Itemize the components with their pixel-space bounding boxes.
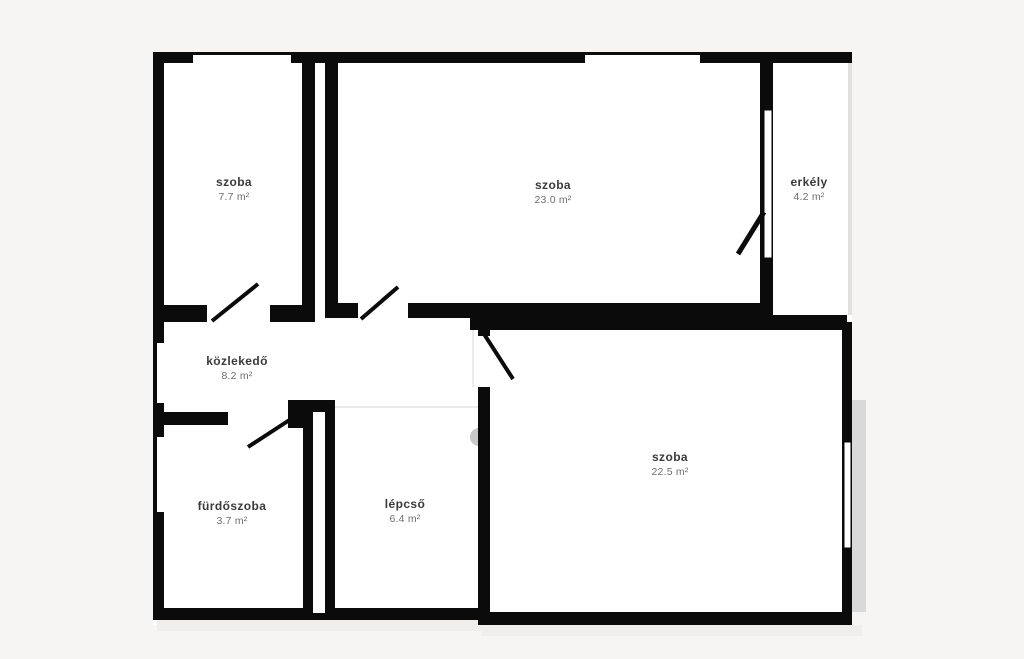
window-room1-top [193, 55, 291, 64]
window-room7-right [844, 442, 851, 548]
wall-junction-cap [288, 400, 335, 412]
wall-bath-right [303, 412, 313, 620]
room-name: lépcső [385, 498, 425, 512]
room-name: szoba [652, 451, 689, 465]
room-name: fürdőszoba [198, 500, 267, 514]
room-label-erkely: erkély 4.2 m² [790, 176, 827, 203]
plan-interior [153, 52, 852, 625]
room-area: 23.0 m² [535, 194, 572, 206]
channel-notch [313, 608, 325, 613]
shadow-bottom-right [482, 625, 862, 636]
room-name: szoba [535, 179, 572, 193]
room-label-szoba-2: szoba 23.0 m² [535, 179, 572, 206]
room-label-kozlekedo: közlekedő 8.2 m² [206, 355, 268, 382]
wall-room2-left [325, 52, 338, 318]
room-name: erkély [790, 176, 827, 190]
wall-room1-bottom-a [153, 305, 207, 322]
room-area: 7.7 m² [216, 191, 252, 203]
room-area: 22.5 m² [652, 466, 689, 478]
balcony-door-leaf [764, 110, 772, 258]
wall-room2-bottom-b [408, 303, 773, 318]
wall-stairs-left [325, 412, 335, 620]
room-label-lepcso: lépcső 6.4 m² [385, 498, 425, 525]
room-area: 8.2 m² [206, 370, 268, 382]
window-room2-top [585, 55, 700, 64]
shadow-bottom-left [157, 620, 490, 631]
window-bath-left [157, 437, 165, 512]
wall-bath-top [164, 412, 228, 425]
floor-plan: szoba 7.7 m² szoba 23.0 m² erkély 4.2 m²… [0, 0, 1024, 659]
room-area: 4.2 m² [790, 191, 827, 203]
room-area: 6.4 m² [385, 513, 425, 525]
room-label-szoba-1: szoba 7.7 m² [216, 176, 252, 203]
room-area: 3.7 m² [198, 515, 267, 527]
wall-stairs-right [478, 387, 490, 620]
room-name: szoba [216, 176, 252, 190]
wall-bottom-east [478, 612, 852, 625]
balcony-railing [848, 63, 852, 315]
wall-room1-right [302, 52, 315, 318]
shadow-right [852, 400, 866, 612]
wall-room1-bottom-b [270, 305, 315, 322]
window-hall-left [157, 343, 165, 403]
wall-left [153, 52, 164, 620]
floor-plan-drawing [0, 0, 1024, 659]
room-label-szoba-3: szoba 22.5 m² [652, 451, 689, 478]
room-label-furdoszoba: fürdőszoba 3.7 m² [198, 500, 267, 527]
room-name: közlekedő [206, 355, 268, 369]
wall-room2-bottom-a [325, 303, 358, 318]
wall-balcony-bottom [773, 315, 847, 330]
